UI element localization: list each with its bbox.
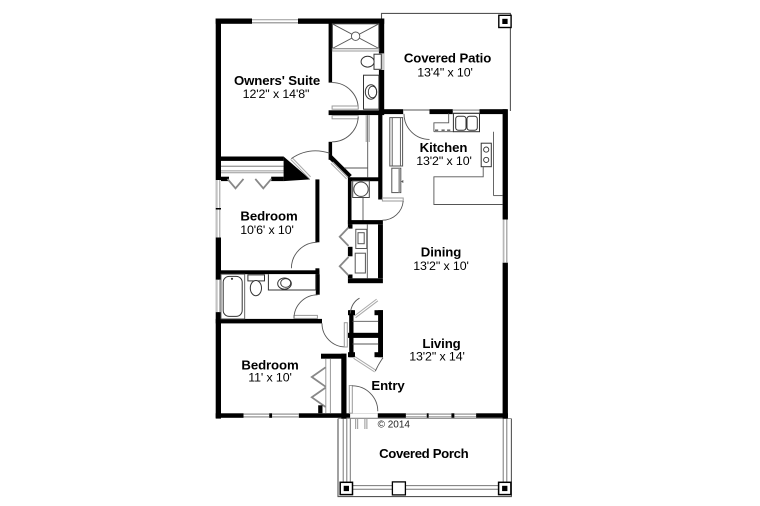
svg-text:© 2014: © 2014 — [378, 420, 411, 431]
svg-text:13'4" x 10': 13'4" x 10' — [417, 65, 473, 79]
svg-text:11' x 10': 11' x 10' — [248, 371, 292, 385]
svg-text:Covered Porch: Covered Porch — [379, 446, 469, 461]
svg-text:Bedroom: Bedroom — [240, 209, 297, 224]
svg-text:Entry: Entry — [371, 378, 405, 393]
svg-text:13'2" x 14': 13'2" x 14' — [409, 350, 465, 364]
svg-text:Owners' Suite: Owners' Suite — [234, 73, 320, 88]
svg-text:13'2" x 10': 13'2" x 10' — [416, 154, 472, 168]
svg-text:Dining: Dining — [421, 244, 461, 259]
svg-text:12'2" x 14'8": 12'2" x 14'8" — [243, 87, 310, 101]
svg-text:13'2" x 10': 13'2" x 10' — [413, 259, 469, 273]
svg-text:Covered Patio: Covered Patio — [404, 51, 491, 66]
svg-text:10'6' x 10': 10'6' x 10' — [240, 223, 294, 237]
svg-text:Kitchen: Kitchen — [420, 140, 468, 155]
